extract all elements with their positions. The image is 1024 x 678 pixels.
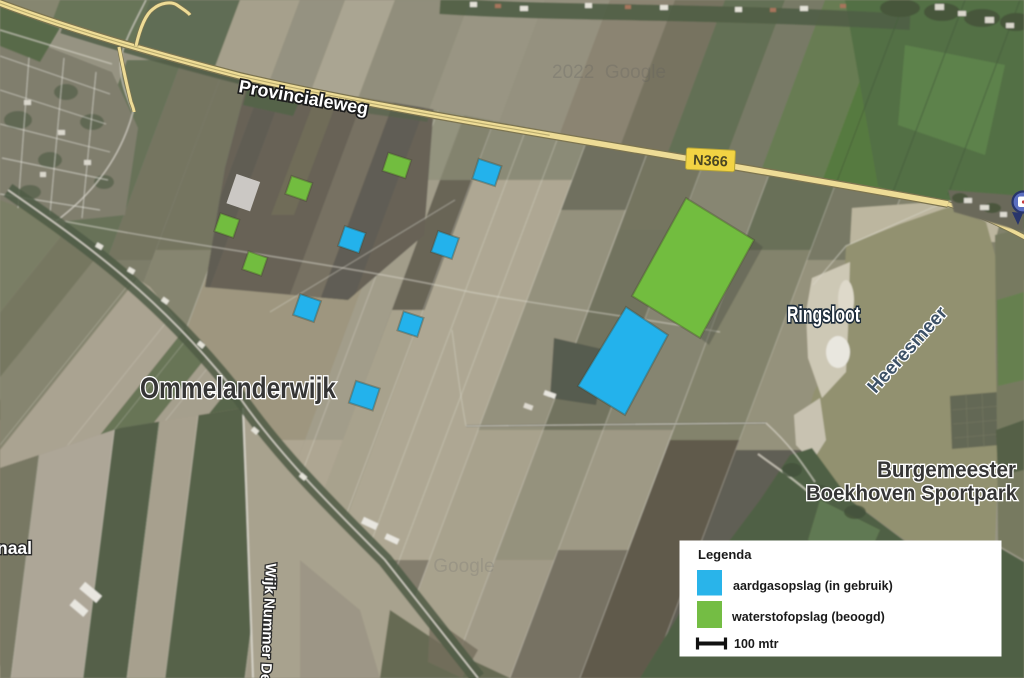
svg-text:naal: naal (0, 538, 32, 558)
svg-text:Boekhoven Sportpark: Boekhoven Sportpark (806, 481, 1017, 505)
svg-text:2022 Google: 2022 Google (552, 62, 666, 83)
svg-text:Legenda: Legenda (698, 547, 752, 562)
svg-text:Ommelanderwijk: Ommelanderwijk (140, 372, 336, 405)
svg-text:Burgemeester: Burgemeester (877, 457, 1016, 482)
svg-text:N366: N366 (693, 153, 728, 171)
svg-text:Google: Google (428, 556, 495, 577)
svg-text:Ringsloot: Ringsloot (787, 302, 860, 327)
svg-text:aardgasopslag (in gebruik): aardgasopslag (in gebruik) (733, 579, 893, 593)
svg-text:waterstofopslag (beoogd): waterstofopslag (beoogd) (731, 610, 885, 624)
svg-text:100 mtr: 100 mtr (734, 637, 779, 651)
